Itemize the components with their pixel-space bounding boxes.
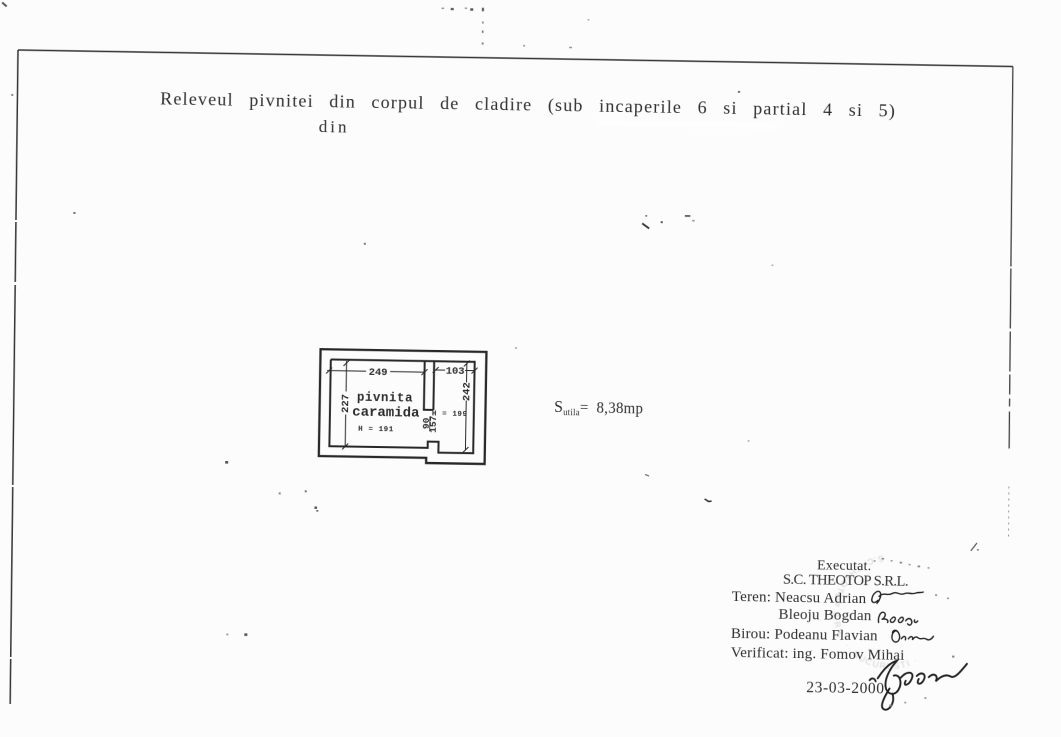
svg-text:242: 242 (461, 382, 473, 401)
svg-text:pivnita: pivnita (357, 391, 413, 406)
svg-text:caramida: caramida (352, 405, 420, 422)
svg-text:227: 227 (340, 394, 352, 413)
svg-text:H = 191: H = 191 (358, 426, 394, 435)
svg-text:249: 249 (369, 367, 388, 379)
svg-text:H = 199: H = 199 (432, 411, 468, 420)
svg-text:103: 103 (446, 366, 465, 378)
